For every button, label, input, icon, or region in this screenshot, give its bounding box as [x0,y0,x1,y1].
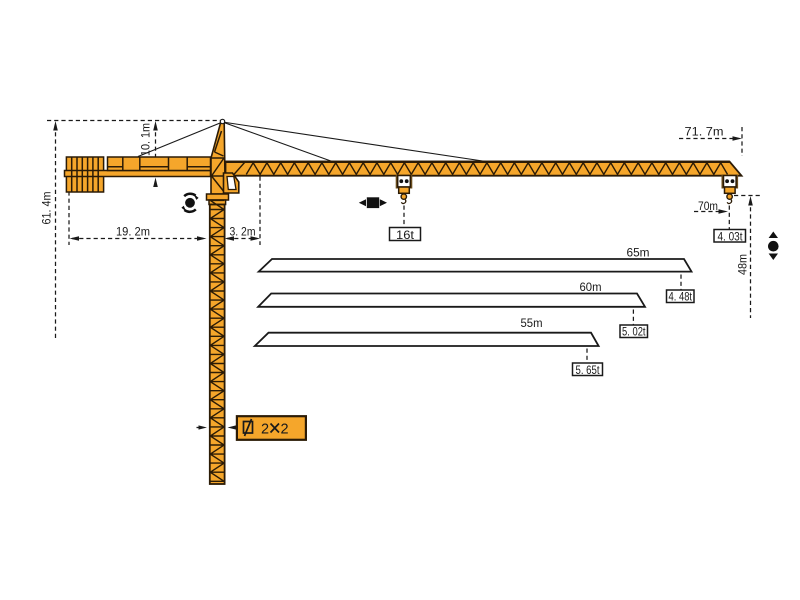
svg-text:2: 2 [280,421,288,437]
svg-text:5. 65t: 5. 65t [576,363,601,377]
svg-text:48m: 48m [736,254,750,275]
svg-text:4. 03t: 4. 03t [718,229,744,243]
svg-text:3. 2m: 3. 2m [230,224,256,238]
svg-text:70m: 70m [698,199,718,213]
svg-text:71. 7m: 71. 7m [685,124,724,138]
svg-text:55m: 55m [521,316,543,330]
svg-text:2: 2 [261,421,269,437]
svg-text:5. 02t: 5. 02t [622,324,646,338]
svg-text:60m: 60m [580,280,602,294]
svg-text:19. 2m: 19. 2m [116,224,150,238]
svg-text:4. 48t: 4. 48t [669,290,693,304]
svg-text:61. 4m: 61. 4m [40,191,54,224]
svg-text:16t: 16t [396,228,415,242]
svg-text:65m: 65m [627,246,650,260]
